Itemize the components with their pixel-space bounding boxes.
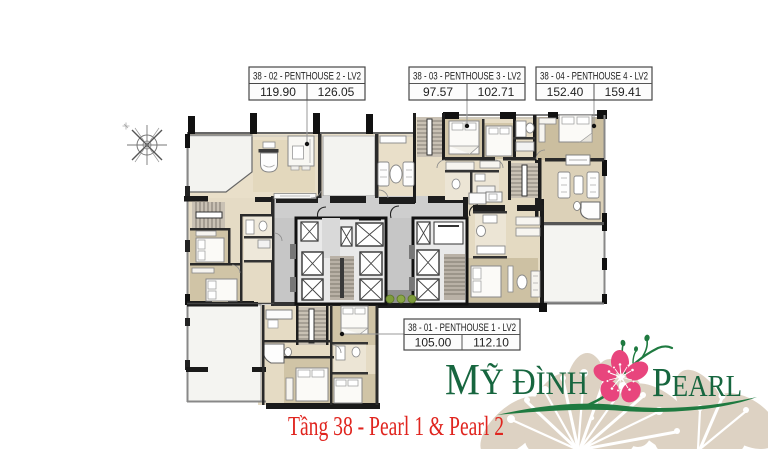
svg-text:97.57: 97.57 — [423, 85, 453, 99]
svg-text:105.00: 105.00 — [415, 336, 452, 350]
svg-text:119.90: 119.90 — [260, 85, 296, 99]
svg-text:152.40: 152.40 — [547, 85, 584, 99]
svg-text:102.71: 102.71 — [478, 85, 515, 99]
svg-text:112.10: 112.10 — [473, 336, 509, 350]
svg-text:126.05: 126.05 — [318, 85, 355, 99]
svg-text:38 - 04 - PENTHOUSE 4 - LV2: 38 - 04 - PENTHOUSE 4 - LV2 — [540, 71, 648, 83]
svg-text:Tầng 38 - Pearl 1 & Pearl 2: Tầng 38 - Pearl 1 & Pearl 2 — [288, 411, 504, 441]
svg-text:38 - 02 - PENTHOUSE 2 - LV2: 38 - 02 - PENTHOUSE 2 - LV2 — [253, 71, 361, 83]
svg-text:38 - 03 - PENTHOUSE 3 - LV2: 38 - 03 - PENTHOUSE 3 - LV2 — [413, 71, 521, 83]
svg-text:38 - 01 - PENTHOUSE 1 - LV2: 38 - 01 - PENTHOUSE 1 - LV2 — [408, 322, 516, 334]
svg-text:159.41: 159.41 — [605, 85, 642, 99]
